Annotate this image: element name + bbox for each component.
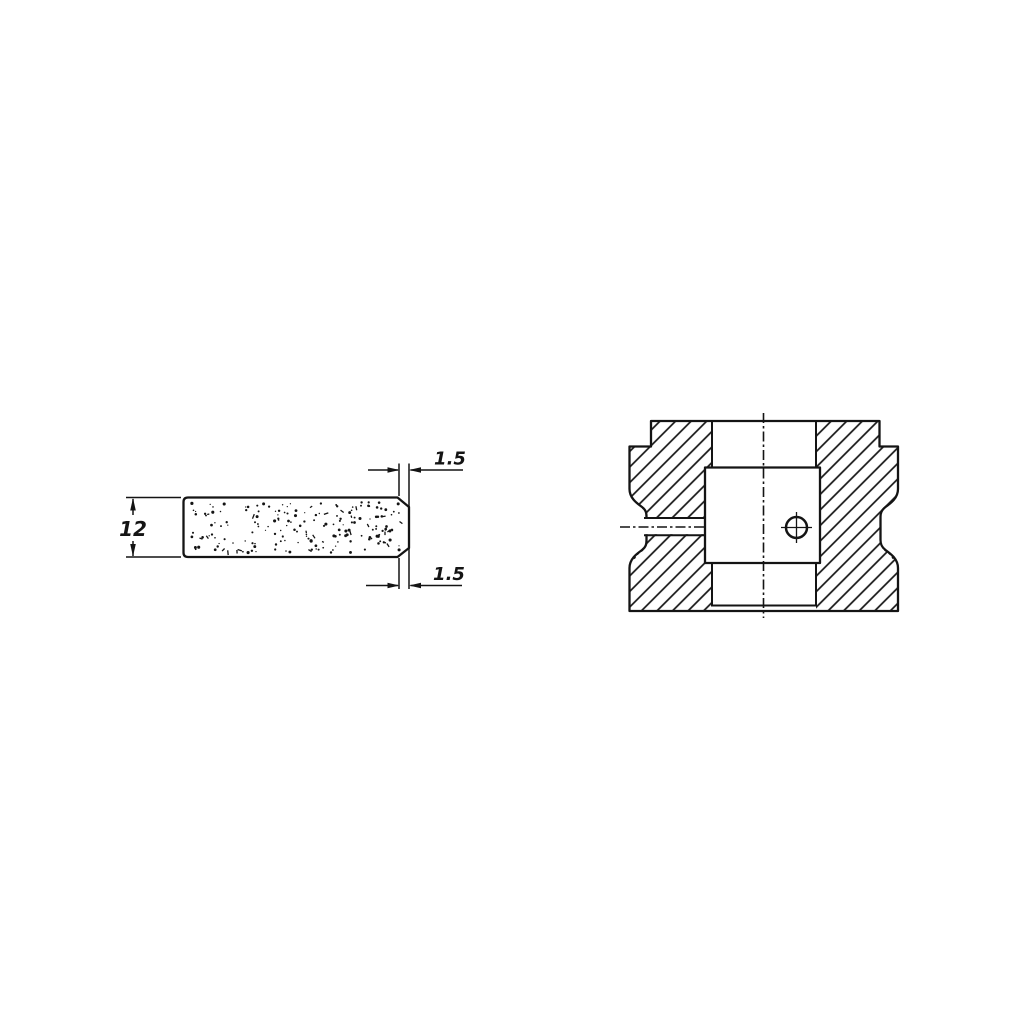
dimension-chamfer-bottom: 1.5 [366, 564, 465, 588]
section-view [620, 413, 898, 618]
technical-drawing: 12 1.5 1.5 [0, 0, 1024, 1024]
dimension-height-label: 12 [119, 517, 147, 541]
hub-boss [705, 468, 820, 564]
dimension-height: 12 [119, 498, 181, 558]
drawing-sheet: 12 1.5 1.5 [0, 0, 1024, 1024]
abrasive-stick-profile [184, 498, 410, 558]
dimension-chamfer-top-label: 1.5 [434, 449, 466, 470]
side-view: 12 1.5 1.5 [119, 449, 466, 590]
dimension-chamfer-bottom-label: 1.5 [433, 564, 465, 585]
